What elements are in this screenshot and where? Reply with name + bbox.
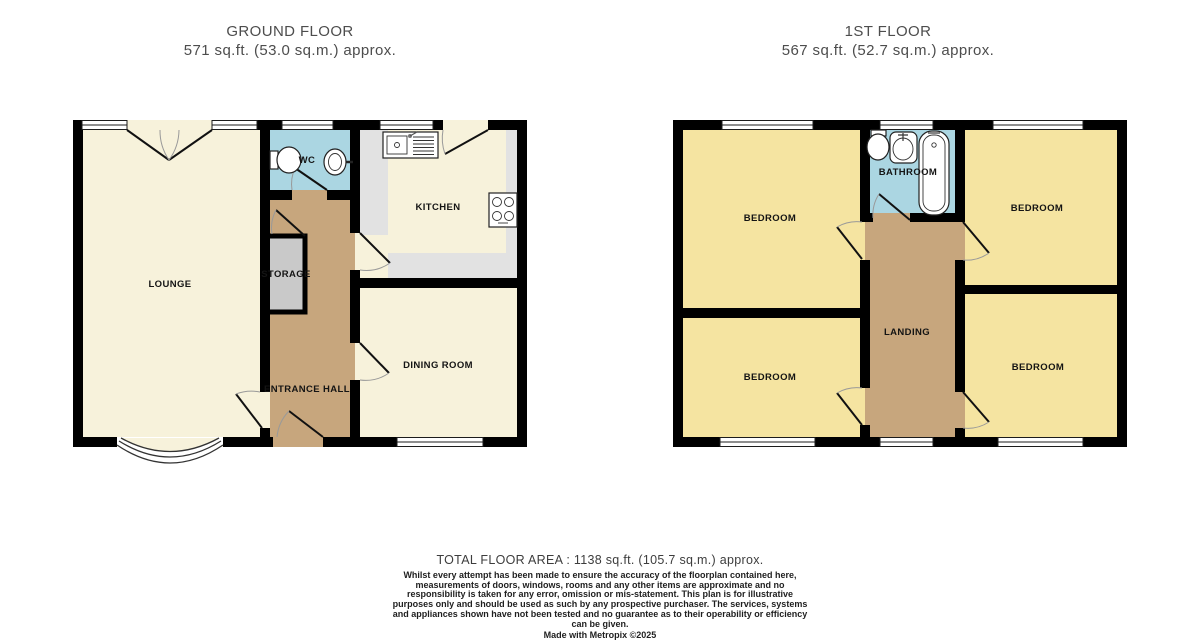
- window: [720, 438, 815, 447]
- dining-room-label: DINING ROOM: [403, 360, 473, 371]
- bedroom-bl-label: BEDROOM: [744, 372, 796, 383]
- ground-floor-title: GROUND FLOOR 571 sq.ft. (53.0 sq.m.) app…: [90, 22, 490, 60]
- window: [212, 121, 257, 130]
- lounge-label: LOUNGE: [148, 279, 191, 290]
- window: [880, 121, 933, 130]
- bedroom-br-label: BEDROOM: [1012, 362, 1064, 373]
- window: [998, 438, 1083, 447]
- first-floor-area: 567 sq.ft. (52.7 sq.m.) approx.: [688, 41, 1088, 60]
- landing-label: LANDING: [884, 327, 930, 338]
- hob-icon: [489, 193, 517, 227]
- window: [282, 121, 333, 130]
- bathroom-label: BATHROOM: [879, 167, 937, 178]
- window: [880, 438, 933, 447]
- basin-icon: [890, 132, 917, 163]
- room-entrance-hall: [270, 190, 355, 447]
- first-floor-name: 1ST FLOOR: [688, 22, 1088, 41]
- window: [380, 121, 433, 130]
- storage-label: STORAGE: [261, 269, 311, 280]
- ground-floor-svg: LOUNGE WC KITCHEN STORAGE ENTRANCE HALL …: [73, 120, 527, 470]
- ground-floor-plan: LOUNGE WC KITCHEN STORAGE ENTRANCE HALL …: [73, 120, 527, 470]
- window: [993, 121, 1083, 130]
- wc-label: WC: [299, 155, 316, 166]
- first-floor-plan: BEDROOM BEDROOM BEDROOM BEDROOM BATHROOM…: [673, 120, 1127, 470]
- ground-floor-name: GROUND FLOOR: [90, 22, 490, 41]
- kitchen-sink-icon: [383, 132, 438, 158]
- toilet-icon: [270, 147, 301, 173]
- disclaimer-text: Whilst every attempt has been made to en…: [386, 571, 814, 629]
- bedroom-tr-label: BEDROOM: [1011, 203, 1063, 214]
- window: [82, 121, 127, 130]
- first-floor-title: 1ST FLOOR 567 sq.ft. (52.7 sq.m.) approx…: [688, 22, 1088, 60]
- bedroom-tl-label: BEDROOM: [744, 213, 796, 224]
- ground-floor-area: 571 sq.ft. (53.0 sq.m.) approx.: [90, 41, 490, 60]
- bay-window: [117, 437, 223, 464]
- window: [722, 121, 813, 130]
- kitchen-label: KITCHEN: [415, 202, 460, 213]
- first-floor-svg: BEDROOM BEDROOM BEDROOM BEDROOM BATHROOM…: [673, 120, 1127, 470]
- total-floor-area: TOTAL FLOOR AREA : 1138 sq.ft. (105.7 sq…: [0, 553, 1200, 567]
- entrance-hall-label: ENTRANCE HALL: [264, 384, 350, 395]
- footer: TOTAL FLOOR AREA : 1138 sq.ft. (105.7 sq…: [0, 553, 1200, 640]
- window: [397, 438, 483, 447]
